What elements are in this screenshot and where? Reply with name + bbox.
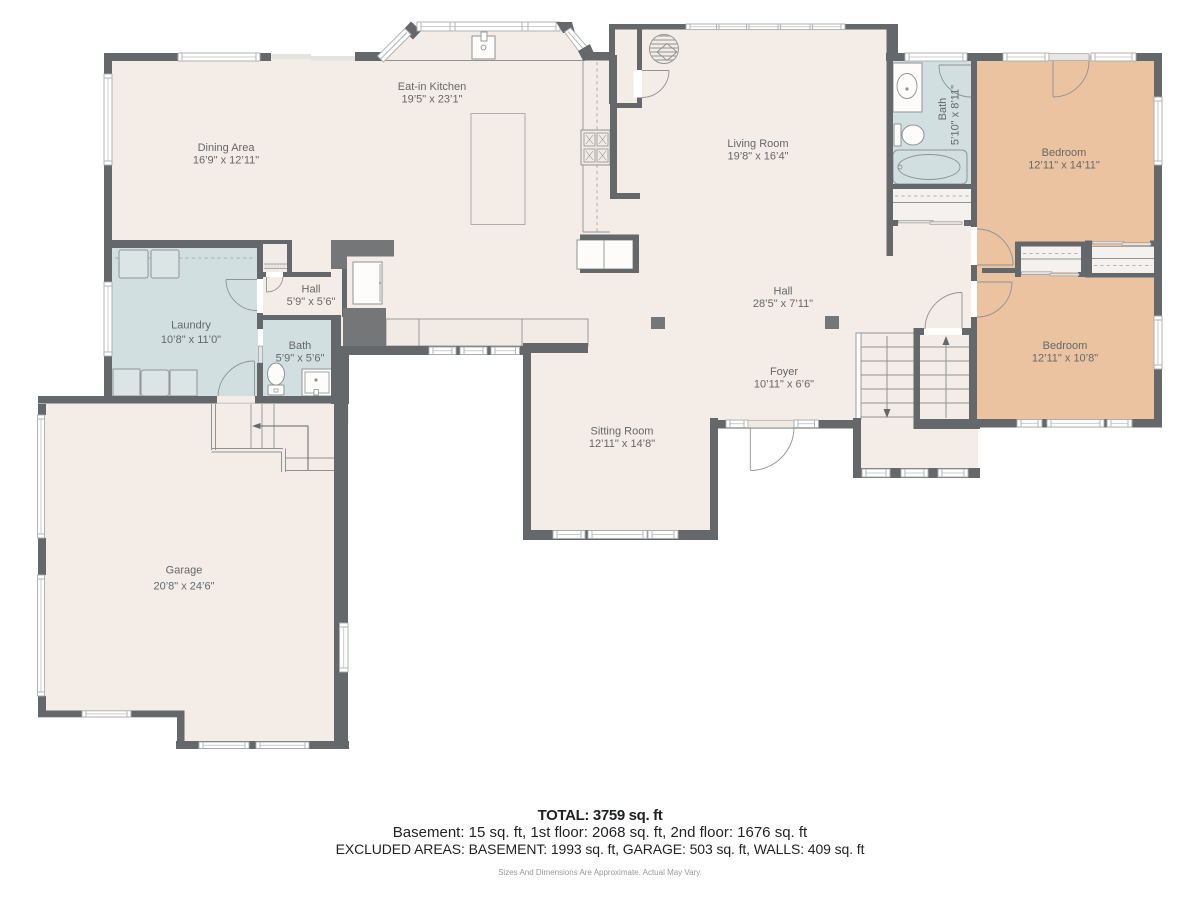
svg-text:Bath: Bath (289, 340, 312, 352)
svg-text:Laundry: Laundry (171, 320, 211, 332)
svg-text:12’11" x 10’8": 12’11" x 10’8" (1032, 353, 1098, 365)
svg-text:10’8" x 11’0": 10’8" x 11’0" (161, 334, 221, 346)
svg-text:12’11" x 14’8": 12’11" x 14’8" (589, 438, 655, 450)
svg-text:Dining Area: Dining Area (198, 142, 256, 154)
svg-text:28’5" x 7’11": 28’5" x 7’11" (753, 298, 813, 310)
svg-text:12’11" x 14’11": 12’11" x 14’11" (1028, 160, 1100, 172)
svg-text:10’11" x 6’6": 10’11" x 6’6" (754, 379, 814, 391)
svg-text:Living Room: Living Room (727, 138, 788, 150)
svg-text:20’8" x 24’6": 20’8" x 24’6" (153, 581, 214, 593)
svg-text:5’10" x 8’11": 5’10" x 8’11" (950, 85, 962, 145)
svg-text:Sitting Room: Sitting Room (591, 426, 654, 438)
svg-text:19’5" x 23’1": 19’5" x 23’1" (401, 93, 462, 105)
svg-text:5’9" x 5’6": 5’9" x 5’6" (287, 296, 336, 308)
svg-text:5’9" x 5’6": 5’9" x 5’6" (276, 353, 325, 365)
svg-text:19’8" x 16’4": 19’8" x 16’4" (727, 150, 788, 162)
svg-text:Bedroom: Bedroom (1043, 340, 1088, 352)
svg-text:Hall: Hall (302, 284, 321, 296)
svg-text:Bath: Bath (937, 98, 949, 121)
svg-text:Garage: Garage (166, 565, 203, 577)
svg-text:16’9" x 12’11": 16’9" x 12’11" (193, 155, 259, 167)
svg-text:Bedroom: Bedroom (1042, 147, 1087, 159)
svg-text:Eat-in Kitchen: Eat-in Kitchen (398, 81, 466, 93)
svg-text:Foyer: Foyer (770, 366, 798, 378)
svg-text:Hall: Hall (774, 286, 793, 298)
